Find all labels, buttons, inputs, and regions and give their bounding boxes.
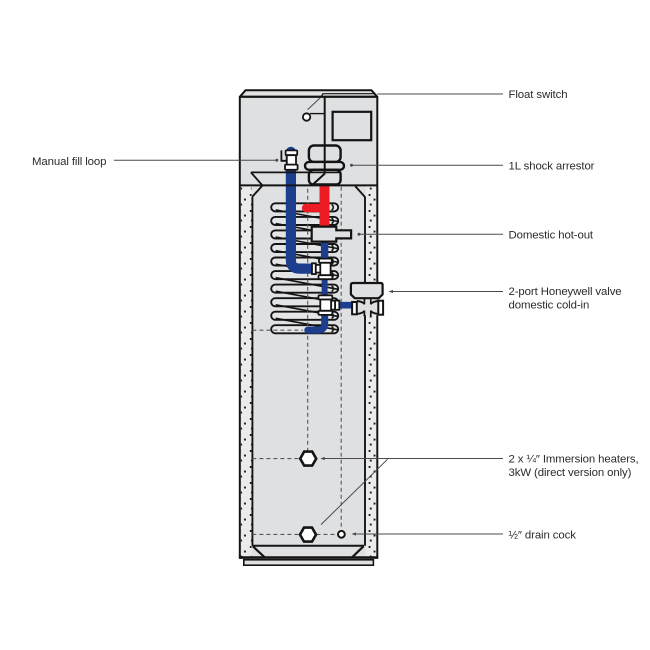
svg-text:domestic cold-in: domestic cold-in (509, 300, 590, 312)
svg-text:1L shock arrestor: 1L shock arrestor (509, 160, 595, 172)
svg-text:Float switch: Float switch (509, 89, 568, 101)
svg-text:Domestic hot-out: Domestic hot-out (509, 230, 594, 242)
svg-text:Manual fill loop: Manual fill loop (32, 156, 106, 168)
svg-text:2 x ¼″ Immersion heaters,: 2 x ¼″ Immersion heaters, (509, 454, 639, 466)
svg-text:2-port Honeywell valve: 2-port Honeywell valve (509, 286, 622, 298)
svg-text:3kW (direct version only): 3kW (direct version only) (509, 467, 632, 479)
svg-text:½″ drain cock: ½″ drain cock (509, 529, 577, 541)
